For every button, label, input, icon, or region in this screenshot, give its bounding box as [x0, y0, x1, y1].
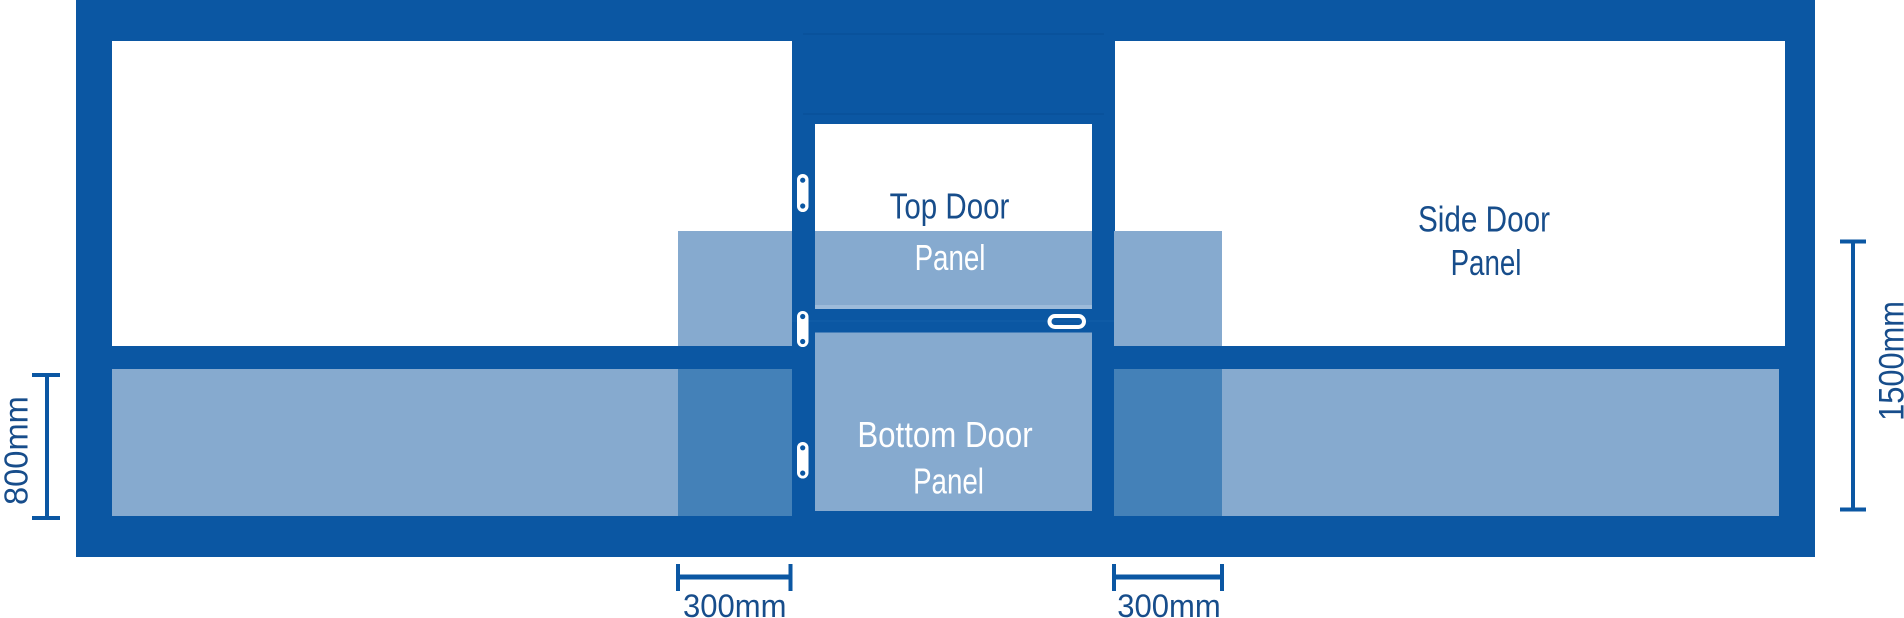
svg-text:1500mm: 1500mm [1872, 301, 1904, 421]
svg-text:300mm: 300mm [1117, 588, 1220, 618]
svg-text:Panel: Panel [913, 461, 984, 501]
svg-text:800mm: 800mm [0, 396, 35, 505]
svg-text:Panel: Panel [915, 238, 986, 278]
svg-text:Top Door: Top Door [890, 186, 1010, 226]
svg-text:Bottom Door: Bottom Door [857, 415, 1032, 456]
svg-text:Side Door: Side Door [1418, 199, 1550, 239]
svg-text:300mm: 300mm [683, 588, 786, 618]
svg-text:Panel: Panel [1451, 243, 1522, 283]
